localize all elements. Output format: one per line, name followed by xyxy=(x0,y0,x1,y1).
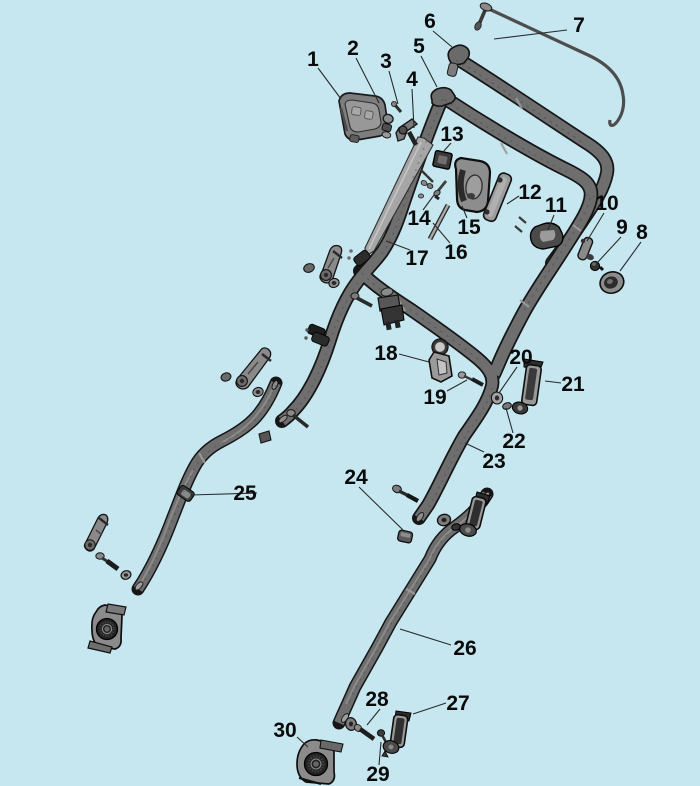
svg-text:23: 23 xyxy=(482,450,505,473)
svg-text:12: 12 xyxy=(518,181,541,204)
svg-text:22: 22 xyxy=(502,430,525,453)
svg-text:11: 11 xyxy=(545,194,568,217)
svg-text:20: 20 xyxy=(509,346,532,369)
svg-text:27: 27 xyxy=(446,692,469,715)
svg-text:18: 18 xyxy=(374,342,398,365)
svg-text:4: 4 xyxy=(406,68,418,91)
svg-text:9: 9 xyxy=(616,216,628,239)
svg-text:3: 3 xyxy=(380,50,392,73)
svg-text:1: 1 xyxy=(307,48,319,71)
svg-text:24: 24 xyxy=(344,466,368,489)
svg-text:16: 16 xyxy=(444,241,467,264)
svg-text:21: 21 xyxy=(561,373,585,396)
svg-text:8: 8 xyxy=(636,221,648,244)
svg-text:13: 13 xyxy=(440,123,463,146)
svg-text:17: 17 xyxy=(405,247,428,270)
svg-text:10: 10 xyxy=(595,192,618,215)
svg-text:25: 25 xyxy=(233,482,257,505)
svg-text:28: 28 xyxy=(365,688,389,711)
svg-text:15: 15 xyxy=(457,216,481,239)
svg-text:14: 14 xyxy=(407,207,431,230)
svg-text:6: 6 xyxy=(424,10,436,33)
svg-text:2: 2 xyxy=(347,37,359,60)
svg-text:7: 7 xyxy=(573,14,585,37)
svg-text:26: 26 xyxy=(453,637,476,660)
svg-text:5: 5 xyxy=(413,35,425,58)
svg-text:30: 30 xyxy=(273,719,296,742)
svg-text:29: 29 xyxy=(366,763,389,786)
svg-text:19: 19 xyxy=(423,386,446,409)
